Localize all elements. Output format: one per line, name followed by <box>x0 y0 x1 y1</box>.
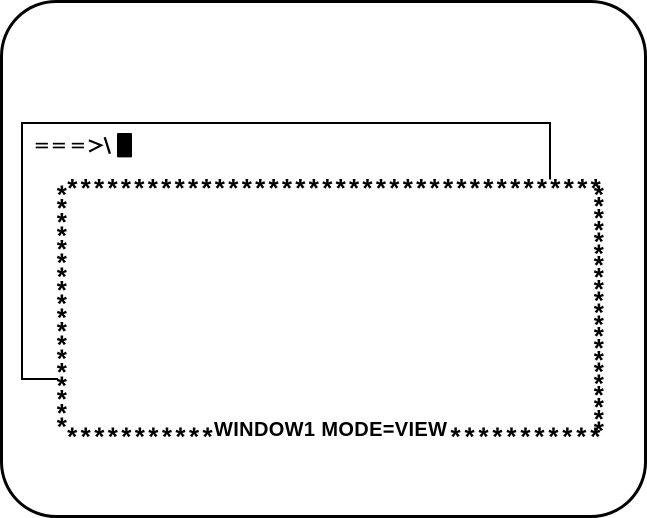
svg-text:*: * <box>548 422 559 452</box>
svg-text:*: * <box>451 422 462 452</box>
svg-text:*: * <box>336 173 347 203</box>
svg-text:*: * <box>94 173 105 203</box>
svg-text:*: * <box>590 422 601 452</box>
svg-text:*: * <box>550 173 561 203</box>
svg-text:*: * <box>322 173 333 203</box>
svg-text:*: * <box>228 173 239 203</box>
svg-text:*: * <box>456 173 467 203</box>
svg-text:*: * <box>534 422 545 452</box>
svg-text:*: * <box>203 422 214 452</box>
svg-text:*: * <box>175 173 186 203</box>
svg-text:*: * <box>470 173 481 203</box>
svg-text:*: * <box>576 422 587 452</box>
svg-text:*: * <box>81 422 92 452</box>
svg-text:*: * <box>577 173 588 203</box>
svg-text:*: * <box>242 173 253 203</box>
svg-text:*: * <box>416 173 427 203</box>
svg-text:*: * <box>362 173 373 203</box>
svg-text:*: * <box>81 173 92 203</box>
svg-text:*: * <box>465 422 476 452</box>
svg-text:*: * <box>215 173 226 203</box>
svg-text:*: * <box>135 422 146 452</box>
svg-text:*: * <box>497 173 508 203</box>
svg-text:*: * <box>134 173 145 203</box>
svg-text:*: * <box>188 173 199 203</box>
svg-text:*: * <box>255 173 266 203</box>
svg-text:*: * <box>389 173 400 203</box>
svg-text:*: * <box>162 422 173 452</box>
svg-text:*: * <box>201 173 212 203</box>
svg-text:*: * <box>121 422 132 452</box>
svg-text:*: * <box>148 173 159 203</box>
svg-text:*: * <box>510 173 521 203</box>
svg-text:*: * <box>175 422 186 452</box>
svg-text:*: * <box>295 173 306 203</box>
svg-text:*: * <box>67 173 78 203</box>
svg-text:*: * <box>524 173 535 203</box>
svg-text:*: * <box>520 422 531 452</box>
svg-text:*: * <box>483 173 494 203</box>
svg-text:*: * <box>479 422 490 452</box>
svg-text:*: * <box>403 173 414 203</box>
svg-text:*: * <box>349 173 360 203</box>
svg-text:*: * <box>108 173 119 203</box>
svg-text:*: * <box>94 422 105 452</box>
svg-text:*: * <box>121 173 132 203</box>
svg-text:*: * <box>161 173 172 203</box>
svg-text:*: * <box>108 422 119 452</box>
svg-text:*: * <box>148 422 159 452</box>
svg-text:*: * <box>537 173 548 203</box>
svg-text:*: * <box>492 422 503 452</box>
svg-text:*: * <box>443 173 454 203</box>
svg-text:*: * <box>269 173 280 203</box>
svg-text:*: * <box>309 173 320 203</box>
svg-text:*: * <box>189 422 200 452</box>
svg-text:*: * <box>430 173 441 203</box>
svg-text:*: * <box>67 422 78 452</box>
svg-text:WINDOW1 MODE=VIEW: WINDOW1 MODE=VIEW <box>214 419 447 441</box>
svg-text:*: * <box>506 422 517 452</box>
svg-text:*: * <box>376 173 387 203</box>
svg-text:*: * <box>282 173 293 203</box>
svg-text:*: * <box>564 173 575 203</box>
svg-text:*: * <box>562 422 573 452</box>
